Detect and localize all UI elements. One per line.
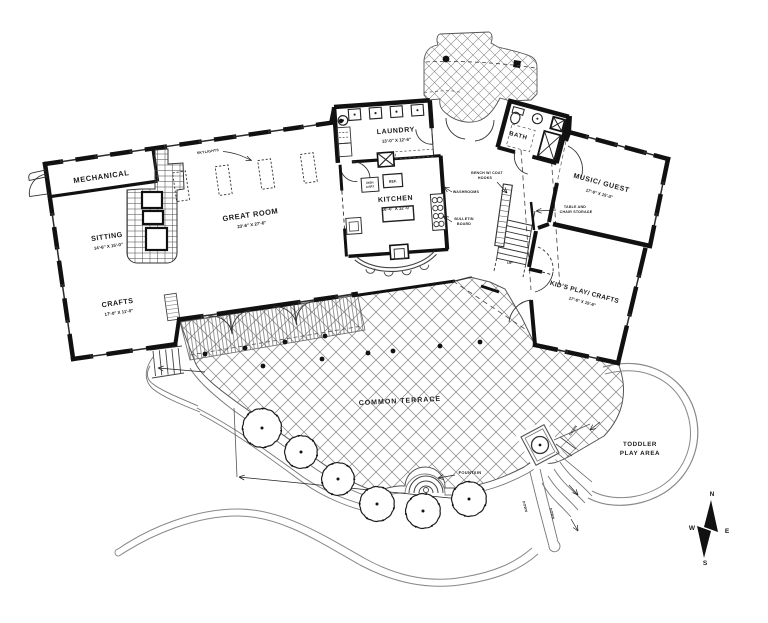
svg-text:HOOKS: HOOKS — [478, 176, 493, 180]
svg-text:CART: CART — [366, 184, 375, 189]
svg-text:WASHROOMS: WASHROOMS — [453, 190, 480, 194]
svg-text:BOARD: BOARD — [457, 222, 471, 226]
svg-text:BULLETIN: BULLETIN — [454, 217, 474, 221]
svg-text:UP: UP — [507, 261, 513, 265]
svg-text:REF.: REF. — [389, 179, 397, 184]
svg-text:CHAIR STORAGE: CHAIR STORAGE — [560, 210, 593, 214]
svg-text:TODDLER: TODDLER — [623, 441, 657, 448]
svg-text:N: N — [710, 491, 715, 498]
svg-text:S: S — [703, 560, 708, 567]
svg-text:PLAY AREA: PLAY AREA — [620, 450, 660, 457]
svg-text:TABLE AND: TABLE AND — [564, 205, 586, 209]
svg-text:FOUNTAIN: FOUNTAIN — [459, 470, 482, 475]
svg-text:E: E — [725, 528, 730, 535]
svg-text:BENCH W/ COAT: BENCH W/ COAT — [471, 171, 503, 175]
svg-text:W: W — [689, 525, 696, 532]
